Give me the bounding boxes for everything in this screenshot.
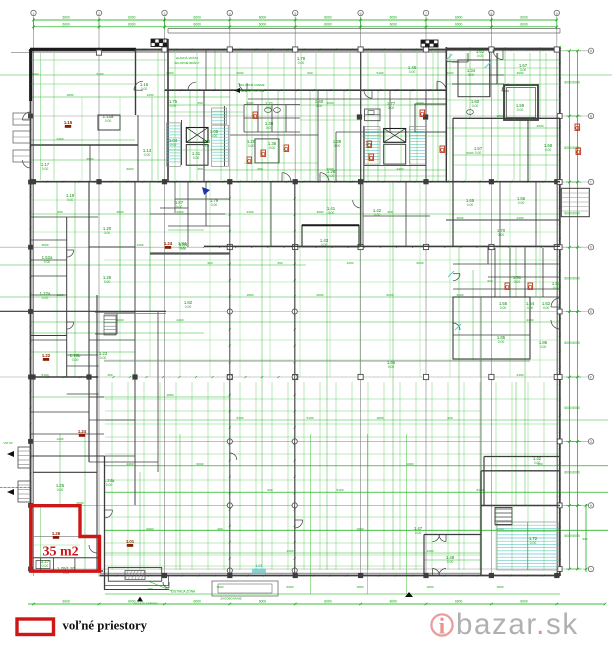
- svg-text:6000: 6000: [572, 212, 580, 216]
- svg-text:450: 450: [217, 527, 222, 531]
- svg-text:6000: 6000: [63, 22, 71, 26]
- svg-text:0.00: 0.00: [266, 126, 273, 130]
- svg-text:3600: 3600: [537, 124, 544, 128]
- svg-text:0.00: 0.00: [518, 201, 525, 205]
- svg-text:1800: 1800: [167, 393, 174, 397]
- svg-text:1.24: 1.24: [164, 241, 173, 246]
- svg-text:5100: 5100: [32, 72, 39, 76]
- svg-text:0.00: 0.00: [534, 461, 541, 465]
- svg-text:6000: 6000: [564, 146, 572, 150]
- svg-text:0.00: 0.00: [540, 345, 547, 349]
- svg-text:1800: 1800: [67, 93, 74, 97]
- svg-text:0.00: 0.00: [498, 340, 505, 344]
- svg-text:0.00: 0.00: [141, 87, 148, 91]
- svg-text:1.22: 1.22: [42, 353, 51, 358]
- svg-text:6000: 6000: [194, 22, 202, 26]
- svg-text:2400: 2400: [517, 373, 524, 377]
- svg-text:4: 4: [229, 12, 231, 16]
- svg-text:5100: 5100: [497, 527, 504, 531]
- svg-text:6000: 6000: [564, 341, 572, 345]
- svg-text:0.00: 0.00: [553, 286, 560, 290]
- svg-text:0.00: 0.00: [211, 134, 218, 138]
- svg-text:0.00: 0.00: [468, 73, 475, 77]
- svg-text:0.00: 0.00: [104, 280, 111, 284]
- svg-text:3600: 3600: [457, 293, 464, 297]
- svg-text:6000: 6000: [128, 22, 136, 26]
- svg-text:0.00: 0.00: [530, 541, 537, 545]
- svg-text:6000: 6000: [194, 600, 202, 604]
- svg-text:1200: 1200: [347, 261, 354, 265]
- svg-text:1800: 1800: [497, 585, 504, 589]
- svg-text:6000: 6000: [564, 470, 572, 474]
- svg-text:VSTUP: VSTUP: [3, 441, 12, 445]
- svg-text:6000: 6000: [520, 600, 528, 604]
- svg-text:0.00: 0.00: [409, 70, 416, 74]
- svg-text:6000: 6000: [520, 16, 528, 20]
- svg-text:900: 900: [307, 71, 312, 75]
- svg-text:6000: 6000: [324, 22, 332, 26]
- svg-text:450: 450: [107, 373, 112, 377]
- svg-text:0.00: 0.00: [321, 243, 328, 247]
- svg-text:0.00: 0.00: [176, 205, 183, 209]
- svg-text:ČISTIACA ZÓNA: ČISTIACA ZÓNA: [171, 589, 196, 594]
- svg-text:6000: 6000: [564, 80, 572, 84]
- svg-text:6000: 6000: [63, 600, 71, 604]
- svg-text:0.00: 0.00: [170, 104, 177, 108]
- svg-text:6000: 6000: [287, 585, 294, 589]
- svg-text:1200: 1200: [137, 243, 144, 247]
- svg-text:0.00: 0.00: [374, 213, 381, 217]
- svg-text:0.00: 0.00: [269, 146, 276, 150]
- svg-text:1: 1: [33, 12, 35, 16]
- svg-text:3600: 3600: [42, 243, 49, 247]
- svg-text:6000: 6000: [572, 406, 580, 410]
- svg-text:6000: 6000: [455, 16, 463, 20]
- svg-text:6000: 6000: [128, 16, 136, 20]
- svg-text:6000: 6000: [324, 16, 332, 20]
- svg-text:0.00: 0.00: [42, 296, 49, 300]
- svg-text:450: 450: [197, 167, 202, 171]
- svg-text:bazar.sk: bazar.sk: [456, 608, 579, 641]
- svg-text:6000: 6000: [572, 341, 580, 345]
- svg-text:0.00: 0.00: [545, 148, 552, 152]
- svg-text:1800: 1800: [247, 293, 254, 297]
- svg-text:0.00: 0.00: [144, 153, 151, 157]
- svg-text:0.00: 0.00: [334, 144, 341, 148]
- svg-text:0.00: 0.00: [514, 280, 521, 284]
- svg-text:0.00: 0.00: [475, 151, 482, 155]
- svg-text:5100: 5100: [337, 488, 344, 492]
- svg-text:1800: 1800: [357, 585, 364, 589]
- svg-text:0.00: 0.00: [44, 260, 51, 264]
- svg-text:0.00: 0.00: [543, 306, 550, 310]
- svg-text:6000: 6000: [327, 101, 334, 105]
- svg-text:G: G: [590, 440, 593, 444]
- svg-text:0.00: 0.00: [388, 365, 395, 369]
- svg-text:3600: 3600: [317, 210, 324, 214]
- svg-text:3600: 3600: [217, 585, 224, 589]
- svg-text:6000: 6000: [455, 22, 463, 26]
- svg-text:6000: 6000: [467, 151, 474, 155]
- svg-text:0.00: 0.00: [266, 106, 273, 110]
- svg-text:450: 450: [277, 261, 282, 265]
- svg-text:1200: 1200: [147, 93, 154, 97]
- svg-text:900: 900: [487, 279, 492, 283]
- svg-text:0.00: 0.00: [42, 564, 49, 568]
- svg-text:i: i: [439, 614, 446, 639]
- svg-text:900: 900: [447, 416, 452, 420]
- svg-text:6000: 6000: [324, 600, 332, 604]
- svg-text:450: 450: [257, 167, 262, 171]
- svg-text:1200: 1200: [427, 549, 434, 553]
- svg-text:6000: 6000: [197, 462, 204, 466]
- svg-text:450: 450: [197, 101, 202, 105]
- svg-text:6000: 6000: [127, 167, 134, 171]
- svg-text:6000: 6000: [390, 16, 398, 20]
- svg-text:6000: 6000: [317, 293, 324, 297]
- svg-text:6000: 6000: [390, 22, 398, 26]
- svg-text:2400: 2400: [247, 210, 254, 214]
- svg-text:6: 6: [360, 12, 362, 16]
- svg-text:6000: 6000: [572, 470, 580, 474]
- svg-text:6000: 6000: [147, 527, 154, 531]
- svg-text:35 m2: 35 m2: [43, 545, 79, 560]
- svg-text:0.00: 0.00: [415, 531, 422, 535]
- svg-text:0.00: 0.00: [248, 144, 255, 148]
- svg-text:0.00: 0.00: [193, 156, 200, 160]
- svg-text:5100: 5100: [97, 72, 104, 76]
- svg-text:6000: 6000: [63, 16, 71, 20]
- svg-text:0.00: 0.00: [211, 203, 218, 207]
- svg-text:6000: 6000: [259, 600, 267, 604]
- svg-text:5100: 5100: [377, 71, 384, 75]
- svg-text:5100: 5100: [307, 416, 314, 420]
- svg-text:2400: 2400: [127, 462, 134, 466]
- svg-text:1800: 1800: [377, 416, 384, 420]
- svg-text:2400: 2400: [57, 137, 64, 141]
- svg-text:0.00: 0.00: [72, 358, 79, 362]
- svg-text:0.00: 0.00: [500, 306, 507, 310]
- svg-text:1.01: 1.01: [126, 539, 135, 544]
- svg-text:0.00: 0.00: [447, 560, 454, 564]
- svg-text:0.00: 0.00: [105, 119, 112, 123]
- svg-text:5: 5: [294, 12, 296, 16]
- svg-text:D: D: [590, 246, 593, 250]
- svg-text:1800: 1800: [497, 114, 504, 118]
- svg-text:6000: 6000: [564, 534, 572, 538]
- svg-text:6000: 6000: [572, 534, 580, 538]
- svg-text:0.00: 0.00: [477, 54, 484, 58]
- svg-text:3: 3: [164, 12, 166, 16]
- svg-text:I: I: [591, 567, 592, 571]
- svg-text:0.00: 0.00: [517, 108, 524, 112]
- svg-text:6000: 6000: [194, 16, 202, 20]
- svg-text:3600: 3600: [457, 216, 464, 220]
- svg-text:0.00: 0.00: [185, 305, 192, 309]
- svg-text:6000: 6000: [564, 212, 572, 216]
- svg-text:0.00: 0.00: [106, 483, 113, 487]
- svg-text:600: 600: [582, 537, 587, 541]
- svg-text:HLAVNÁ VRÁTA: HLAVNÁ VRÁTA: [176, 56, 198, 60]
- svg-text:8: 8: [490, 12, 492, 16]
- svg-text:6000: 6000: [572, 80, 580, 84]
- svg-text:SKLOPNÉ BRÁNY: SKLOPNÉ BRÁNY: [174, 60, 199, 65]
- svg-text:450: 450: [57, 210, 62, 214]
- svg-text:7: 7: [425, 12, 427, 16]
- svg-text:0.00: 0.00: [388, 106, 395, 110]
- svg-text:0.00: 0.00: [472, 104, 479, 108]
- svg-text:0.00: 0.00: [328, 211, 335, 215]
- svg-text:2400: 2400: [517, 216, 524, 220]
- svg-text:0.00: 0.00: [170, 143, 177, 147]
- svg-text:1200: 1200: [57, 437, 64, 441]
- svg-text:1800: 1800: [407, 462, 414, 466]
- svg-text:1.24: 1.24: [78, 429, 87, 434]
- svg-text:H: H: [590, 504, 593, 508]
- svg-text:1.26: 1.26: [52, 531, 61, 536]
- svg-text:9: 9: [556, 12, 558, 16]
- svg-text:0.00: 0.00: [179, 246, 186, 250]
- svg-text:VCHOD SPRÁVA: VCHOD SPRÁVA: [134, 602, 158, 606]
- svg-text:1.15: 1.15: [64, 120, 73, 125]
- svg-text:ZASOBOVANIE: ZASOBOVANIE: [220, 597, 241, 601]
- svg-text:C: C: [590, 180, 593, 184]
- svg-text:6000: 6000: [237, 71, 244, 75]
- svg-text:0.00: 0.00: [498, 233, 505, 237]
- svg-text:1800: 1800: [427, 585, 434, 589]
- svg-text:0.00: 0.00: [57, 488, 64, 492]
- svg-text:HLAVNÝ VCHOD: HLAVNÝ VCHOD: [240, 89, 266, 93]
- svg-text:6000: 6000: [259, 16, 267, 20]
- svg-text:1800: 1800: [357, 527, 364, 531]
- svg-text:6000: 6000: [520, 22, 528, 26]
- svg-text:6000: 6000: [259, 22, 267, 26]
- svg-text:6000: 6000: [564, 406, 572, 410]
- svg-text:0.00: 0.00: [100, 356, 107, 360]
- svg-text:0.00: 0.00: [467, 203, 474, 207]
- svg-text:6000: 6000: [572, 276, 580, 280]
- svg-text:0.00: 0.00: [527, 306, 534, 310]
- svg-text:0.00: 0.00: [316, 104, 323, 108]
- svg-text:2: 2: [98, 12, 100, 16]
- svg-text:2400: 2400: [397, 167, 404, 171]
- svg-text:voľné priestory: voľné priestory: [63, 619, 148, 633]
- svg-text:6000: 6000: [390, 600, 398, 604]
- svg-text:0.00: 0.00: [203, 144, 210, 148]
- svg-text:0.00: 0.00: [42, 167, 49, 171]
- svg-text:0.00: 0.00: [520, 68, 527, 72]
- svg-text:6000: 6000: [564, 276, 572, 280]
- svg-text:6000: 6000: [455, 600, 463, 604]
- svg-text:1200: 1200: [287, 549, 294, 553]
